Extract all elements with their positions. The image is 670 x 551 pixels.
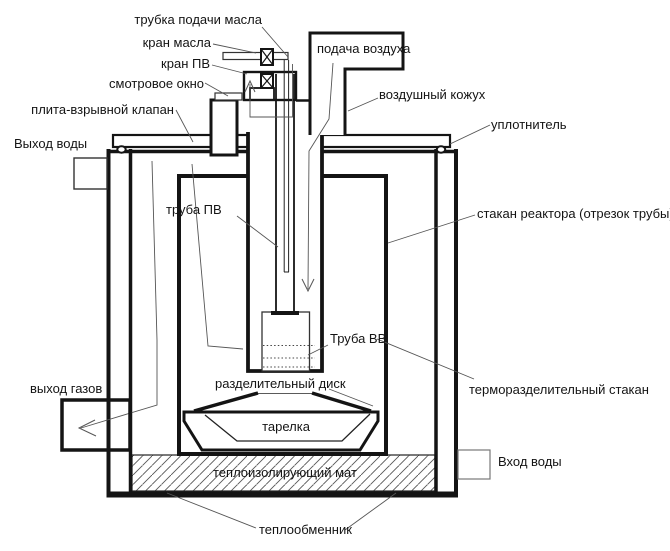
label-water-outlet: Выход воды (14, 136, 87, 151)
pv-valve-icon (261, 74, 273, 88)
label-sight-window: смотровое окно (109, 76, 204, 91)
seal-right (437, 146, 445, 152)
label-thermal-cup: терморазделительный стакан (469, 382, 649, 397)
label-explosion-plate: плита-взрывной клапан (31, 102, 174, 117)
label-air-supply: подача воздуха (317, 41, 411, 56)
label-reactor-cup: стакан реактора (отрезок трубы) (477, 206, 670, 221)
label-separating-disk: разделительный диск (215, 376, 346, 391)
oil-supply-pipe (223, 53, 288, 60)
schematic-page: трубка подачи масла кран масла кран ПВ с… (0, 0, 670, 551)
label-bb-pipe: Труба ВВ (330, 331, 386, 346)
label-gas-outlet: выход газов (30, 381, 102, 396)
bb-pipe-cup (262, 312, 310, 371)
label-heat-exchanger: теплообменник (259, 522, 352, 537)
label-oil-valve: кран масла (143, 35, 212, 50)
sight-window-column (211, 100, 237, 155)
label-pv-pipe: труба ПВ (166, 202, 222, 217)
label-pv-valve: кран ПВ (161, 56, 210, 71)
water-outlet-stub (74, 158, 107, 189)
oil-valve-icon (261, 49, 273, 65)
water-inlet-stub (458, 450, 490, 479)
seal-left (117, 146, 125, 152)
label-dish: тарелка (262, 419, 311, 434)
label-insulating-mat: теплоизолирующий мат (213, 465, 357, 480)
label-water-inlet: Вход воды (498, 454, 562, 469)
label-seal: уплотнитель (491, 117, 567, 132)
label-oil-supply-tube: трубка подачи масла (134, 12, 262, 27)
sight-window-pane (215, 93, 242, 100)
label-air-casing: воздушный кожух (379, 87, 486, 102)
reactor-schematic: трубка подачи масла кран масла кран ПВ с… (0, 0, 670, 551)
